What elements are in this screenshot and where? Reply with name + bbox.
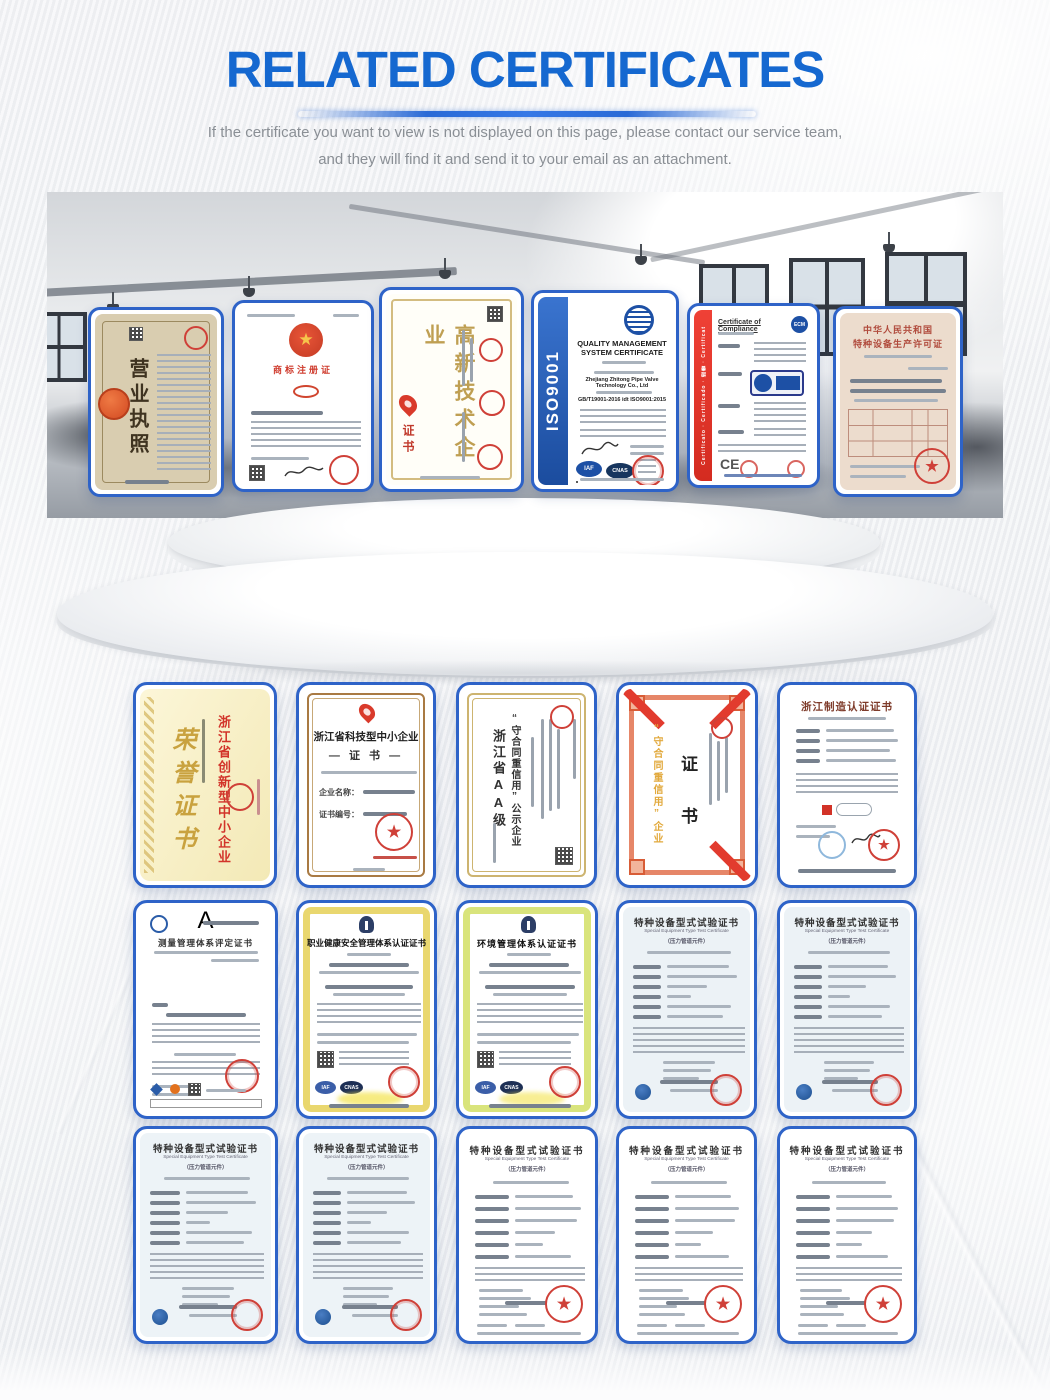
footer-line <box>477 1332 581 1335</box>
certificate-business-license[interactable]: 营业执照 <box>88 307 224 497</box>
certificate-paper: ISO9001 QUALITY MANAGEMENT SYSTEM CERTIF… <box>538 297 672 485</box>
star-glyph: ★ <box>557 1294 571 1314</box>
signature <box>283 463 325 481</box>
issuer-globe-logo <box>315 1309 331 1325</box>
certificate-paper: 荣誉证书 浙江省创新型中小企业 <box>140 689 270 881</box>
field-label-line <box>475 1195 509 1199</box>
date-line <box>630 445 664 448</box>
certificate-honor[interactable]: 荣誉证书 浙江省创新型中小企业 <box>133 682 277 888</box>
issuer-globe-logo <box>635 1084 651 1100</box>
certificate-paper: 测量管理体系评定证书 A <box>140 907 271 1112</box>
certificate-contract-credit[interactable]: “守合同重信用”企业 证 书 <box>616 682 758 888</box>
signature <box>580 439 620 459</box>
certificate-text-line <box>251 411 323 415</box>
date-line <box>836 1324 866 1327</box>
certificate-text-block <box>150 1253 264 1279</box>
certificate-paper: ★ 商标注册证 <box>239 307 367 485</box>
field-label-line <box>150 1211 180 1215</box>
certificate-type-test-5[interactable]: 特种设备型式试验证书 Special Equipment Type Test C… <box>456 1126 598 1344</box>
certificate-title: 特种设备型式试验证书 <box>140 1141 271 1155</box>
certificate-text-line <box>211 959 259 962</box>
qr-code <box>317 1051 334 1068</box>
cert-no-line <box>812 1181 886 1184</box>
red-seal <box>711 717 733 739</box>
field-label-line <box>633 965 661 969</box>
list-line <box>479 1297 531 1300</box>
certificate-paper: 特种设备型式试验证书 Special Equipment Type Test C… <box>784 907 910 1112</box>
field-label-line <box>313 1221 341 1225</box>
certificate-text-line <box>477 1041 571 1044</box>
globe-logo-icon <box>624 305 654 335</box>
field-label-line <box>794 975 822 979</box>
field-value-line <box>828 975 896 978</box>
certificate-text-line <box>343 1295 389 1298</box>
certificate-text-line <box>125 480 169 484</box>
field-value-line <box>828 1015 882 1018</box>
certificate-title-line1: 中华人民共和国 <box>840 323 956 336</box>
iso9001-band: ISO9001 <box>538 297 568 485</box>
certificate-text-line <box>594 371 654 374</box>
certificate-text-block <box>754 342 806 364</box>
qr-code <box>129 327 143 341</box>
red-star-seal: ★ <box>914 448 950 484</box>
list-line <box>800 1305 838 1308</box>
star-glyph: ★ <box>925 457 938 475</box>
issuer-text-line <box>189 1314 237 1317</box>
field-label-line <box>313 1211 341 1215</box>
red-seal <box>226 783 254 811</box>
field-value-line <box>186 1191 248 1194</box>
certificate-text-line <box>343 1287 393 1290</box>
related-certificates-page: RELATED CERTIFICATES If the certificate … <box>0 0 1050 1400</box>
field-label-line <box>475 1219 509 1223</box>
certificate-text-line <box>477 1033 579 1036</box>
certificate-title: 浙江省科技型中小企业 <box>303 729 429 744</box>
orange-seal <box>98 388 130 420</box>
field-label-line <box>633 975 661 979</box>
issuer-text-line <box>179 1305 237 1309</box>
field-value-line <box>515 1255 571 1258</box>
certificate-title: Certificate of Compliance <box>718 319 792 333</box>
certificate-text-line <box>824 1061 874 1064</box>
field-label-line <box>794 1015 822 1019</box>
certificate-title-en: Special Equipment Type Test Certificate <box>463 1157 591 1162</box>
red-seal <box>870 1074 902 1106</box>
issuer-logo <box>150 915 168 933</box>
certificate-text-line <box>182 1287 234 1290</box>
field-label-line <box>475 1243 509 1247</box>
certificate-text-block <box>317 1003 421 1025</box>
ecm-logo: ECM <box>791 316 808 333</box>
iso9001-band-label: ISO9001 <box>543 350 563 431</box>
certificate-aa-contract-credit[interactable]: 浙江省AA级 “守合同重信用”公示企业 <box>456 682 597 888</box>
cnas-logo: CNAS <box>606 463 634 479</box>
field-label-line <box>796 729 820 733</box>
footer-line <box>637 1332 739 1335</box>
date-line <box>798 1324 828 1327</box>
certificate-scope: （压力管道元件） <box>784 1165 910 1173</box>
qr-code <box>576 481 578 483</box>
standard-line: GB/T19001-2016 idt ISO9001:2015 <box>574 397 670 403</box>
red-star-seal: ★ <box>864 1285 902 1323</box>
field-label-line <box>796 1219 830 1223</box>
vertical-text-line <box>493 823 496 863</box>
certificate-scope: （压力管道元件） <box>303 1163 430 1171</box>
certificate-type-test-6[interactable]: 特种设备型式试验证书 Special Equipment Type Test C… <box>616 1126 757 1344</box>
field-label-line <box>633 985 661 989</box>
certificate-text-line <box>479 971 581 974</box>
footer-ornament <box>353 868 385 871</box>
field-value-line <box>186 1241 244 1244</box>
vertical-text-line <box>531 737 534 807</box>
partner-logo-pill <box>836 803 872 816</box>
gold-title: “守合同重信用”企业 <box>649 723 664 845</box>
list-line <box>639 1297 689 1300</box>
field-value-line <box>347 1241 401 1244</box>
issuer-text-line <box>826 1301 866 1305</box>
red-seal <box>549 1066 581 1098</box>
subtitle-line1: If the certificate you want to view is n… <box>0 124 1050 141</box>
vertical-text-line <box>709 733 712 805</box>
red-seal <box>550 705 574 729</box>
certificate-paper: 特种设备型式试验证书 Special Equipment Type Test C… <box>140 1133 271 1337</box>
certificate-text-line <box>854 399 938 402</box>
qr-code <box>249 465 265 481</box>
date-line <box>515 1324 545 1327</box>
field-label-line <box>794 965 822 969</box>
certificate-paper: 特种设备型式试验证书 Special Equipment Type Test C… <box>784 1133 910 1337</box>
red-star-seal: ★ <box>704 1285 742 1323</box>
certificate-title-col1: 浙江省AA级 <box>489 729 508 829</box>
certification-emblem-icon <box>359 916 374 933</box>
field-label-line <box>633 995 661 999</box>
footer-line <box>798 1332 898 1335</box>
certificate-text-block <box>477 1003 583 1025</box>
field-value-line <box>667 985 707 988</box>
certificate-subtitle: 证书 <box>400 424 417 456</box>
field-label-line <box>635 1243 669 1247</box>
field-value-line <box>667 1005 731 1008</box>
certificate-text-line <box>319 971 419 974</box>
field-value-line <box>675 1231 713 1234</box>
list-line <box>639 1313 685 1316</box>
certificate-type-test-7[interactable]: 特种设备型式试验证书 Special Equipment Type Test C… <box>777 1126 917 1344</box>
list-line <box>479 1305 519 1308</box>
certificate-title: 特种设备型式试验证书 <box>784 1143 910 1157</box>
vertical-text-line <box>541 719 544 819</box>
issuer-text-line <box>342 1305 398 1309</box>
certificate-tech-sme[interactable]: 浙江省科技型中小企业 — 证 书 — 企业名称： 证书编号： ★ <box>296 682 436 888</box>
field-label-line <box>150 1201 180 1205</box>
certificate-text-block <box>251 421 361 451</box>
certificate-text-line <box>850 389 946 393</box>
list-line <box>639 1305 677 1308</box>
compliance-band-label: Certificato · Certificado · 證書 · Certifi… <box>700 326 707 465</box>
certificate-text-block <box>718 444 806 454</box>
field-label-line <box>635 1231 669 1235</box>
field-label-line <box>635 1255 669 1259</box>
field-label-line <box>475 1255 509 1259</box>
certificate-paper: 环境管理体系认证证书 IAF CNAS <box>463 907 591 1112</box>
qr-code <box>487 306 503 322</box>
field-label-line <box>796 759 820 763</box>
field-value-line <box>515 1207 581 1210</box>
field-label-line <box>633 1005 661 1009</box>
certificate-text-line <box>663 1069 711 1072</box>
brand-logo <box>293 385 319 398</box>
field-label-line <box>150 1241 180 1245</box>
certificate-title: 环境管理体系认证证书 <box>463 937 591 950</box>
cert-no-line <box>327 1177 409 1180</box>
field-label-line <box>796 739 820 743</box>
certificate-title: 特种设备型式试验证书 <box>463 1143 591 1157</box>
mark-badge-logo <box>754 374 772 392</box>
divider-line <box>321 771 417 774</box>
field-value-line <box>667 1015 723 1018</box>
issuer-text-line <box>505 1301 547 1305</box>
certificate-text-line <box>493 993 567 996</box>
field-label-line <box>718 372 742 376</box>
red-seal <box>477 444 503 470</box>
field-value-line <box>347 1221 371 1224</box>
field-value-line <box>828 1005 890 1008</box>
certificate-text-line <box>850 475 906 478</box>
certificate-environment-management[interactable]: 环境管理体系认证证书 IAF CNAS <box>456 900 598 1119</box>
field-label-line <box>796 1255 830 1259</box>
certificate-text-line <box>908 367 948 370</box>
date-line <box>637 1324 667 1327</box>
certificate-text-line <box>596 391 652 394</box>
certificate-text-block <box>313 1253 423 1279</box>
field-value-line <box>836 1195 892 1198</box>
subtitle-line2: and they will find it and send it to you… <box>0 151 1050 168</box>
issuer-text-line <box>666 1301 706 1305</box>
certificate-zhejiang-made[interactable]: 浙江制造认证证书 ★ <box>777 682 917 888</box>
list-line <box>800 1313 844 1316</box>
red-seal <box>388 1066 420 1098</box>
date-line <box>796 825 836 828</box>
cert-no-line <box>651 1181 727 1184</box>
field1-label: 企业名称： <box>319 787 359 798</box>
certificate-text-block <box>157 354 211 472</box>
field-label-line <box>796 749 820 753</box>
certificate-special-equipment-license[interactable]: 中华人民共和国 特种设备生产许可证 ★ <box>833 306 963 497</box>
certificate-ohs-management[interactable]: 职业健康安全管理体系认证证书 IAF CNAS <box>296 900 437 1119</box>
field-value-line <box>836 1255 888 1258</box>
field-value-line <box>828 985 866 988</box>
footer-line <box>489 1104 571 1108</box>
company-line <box>329 963 409 967</box>
certificate-text-line <box>333 993 405 996</box>
field1-value-line <box>363 790 415 794</box>
certificate-type-test-2[interactable]: 特种设备型式试验证书 Special Equipment Type Test C… <box>777 900 917 1119</box>
certificate-type-test-1[interactable]: 特种设备型式试验证书 Special Equipment Type Test C… <box>616 900 757 1119</box>
field-label-line <box>150 1191 180 1195</box>
cert-no-line <box>164 1177 250 1180</box>
certificate-scope: （压力管道元件） <box>140 1163 271 1171</box>
certificate-text-block <box>475 1267 585 1283</box>
hanging-lamp <box>243 288 255 297</box>
red-seal <box>479 338 503 362</box>
field-label-line <box>633 1015 661 1019</box>
certificate-measurement-system[interactable]: 测量管理体系评定证书 A <box>133 900 278 1119</box>
bottom-fade <box>0 1345 1050 1400</box>
certificate-title: QUALITY MANAGEMENT SYSTEM CERTIFICATE <box>574 339 670 357</box>
field-value-line <box>826 749 890 752</box>
cert-no-line <box>507 953 551 956</box>
field-label-line <box>796 1243 830 1247</box>
certificate-of-compliance[interactable]: Certificato · Certificado · 證書 · Certifi… <box>687 303 820 488</box>
certificate-title-col2: “守合同重信用”公示企业 <box>507 713 522 847</box>
certificate-paper: 浙江省AA级 “守合同重信用”公示企业 <box>463 689 590 881</box>
certificate-title-en: Special Equipment Type Test Certificate <box>303 1155 430 1160</box>
footer-line <box>798 869 896 873</box>
certificate-trademark-registration[interactable]: ★ 商标注册证 <box>232 300 374 492</box>
certificate-paper: 特种设备型式试验证书 Special Equipment Type Test C… <box>623 907 750 1112</box>
field-value-line <box>347 1191 407 1194</box>
compliance-band: Certificato · Certificado · 證書 · Certifi… <box>694 310 712 481</box>
star-glyph: ★ <box>387 822 401 842</box>
vertical-text-line <box>557 729 560 809</box>
star-glyph: ★ <box>878 837 890 853</box>
podium-tier2-top <box>57 552 993 676</box>
iaf-logo: IAF <box>475 1081 496 1094</box>
certificate-text-line <box>602 361 646 364</box>
certificate-text-block <box>152 1023 260 1047</box>
list-line <box>479 1313 527 1316</box>
vertical-text-line <box>549 719 552 811</box>
field-value-line <box>836 1243 862 1246</box>
footer-line <box>580 478 664 481</box>
field-label-line <box>313 1191 341 1195</box>
field-label-line <box>794 995 822 999</box>
vertical-text-line <box>462 330 465 386</box>
certificate-text-line <box>864 355 932 358</box>
certificate-scope: （压力管道元件） <box>623 1165 750 1173</box>
vertical-text-line <box>257 779 260 815</box>
certificate-text-line <box>206 1089 246 1092</box>
field-label-line <box>718 344 740 348</box>
field-label-line <box>796 1231 830 1235</box>
certificate-title: 高新技术企业 <box>418 324 478 485</box>
standard-line <box>485 985 575 989</box>
vertical-text-line <box>717 741 720 801</box>
field-value-line <box>186 1231 252 1234</box>
certificate-type-test-4[interactable]: 特种设备型式试验证书 Special Equipment Type Test C… <box>296 1126 437 1344</box>
certificate-paper: 特种设备型式试验证书 Special Equipment Type Test C… <box>623 1133 750 1337</box>
field-label-line <box>150 1221 180 1225</box>
iaf-logo: IAF <box>576 461 602 477</box>
issuer-globe-logo <box>796 1084 812 1100</box>
cert-no-line <box>347 953 391 956</box>
certificate-type-test-3[interactable]: 特种设备型式试验证书 Special Equipment Type Test C… <box>133 1126 278 1344</box>
certificate-subtitle: — 证 书 — <box>303 747 429 763</box>
field-label-line <box>152 1003 168 1007</box>
field-label-line <box>635 1219 669 1223</box>
star-glyph: ★ <box>876 1294 890 1314</box>
field-value-line <box>675 1255 729 1258</box>
certificate-title-line2: 特种设备生产许可证 <box>840 337 956 350</box>
footer-box <box>150 1099 262 1108</box>
red-seal <box>184 326 208 350</box>
frame-corner <box>629 859 645 875</box>
qr-code <box>477 1051 494 1068</box>
certificate-text-line <box>718 332 754 335</box>
field-value-line <box>828 995 850 998</box>
certificate-paper: 中华人民共和国 特种设备生产许可证 ★ <box>840 313 956 490</box>
certificate-paper: 浙江制造认证证书 ★ <box>784 689 910 881</box>
blue-watermark-seal <box>818 831 846 859</box>
certificate-text-block <box>580 409 666 425</box>
certificate-paper: 特种设备型式试验证书 Special Equipment Type Test C… <box>303 1133 430 1337</box>
issuer-text-line <box>660 1080 718 1084</box>
vertical-text-line <box>573 719 576 779</box>
certificate-title: 测量管理体系评定证书 <box>140 937 271 949</box>
field-label-line <box>313 1231 341 1235</box>
certificate-text-line <box>251 457 309 460</box>
footer-line <box>724 474 802 477</box>
certificate-title: 特种设备型式试验证书 <box>623 1143 750 1157</box>
certificate-text-line <box>824 1069 870 1072</box>
certificate-text-line <box>420 476 480 479</box>
field-value-line <box>186 1211 228 1214</box>
certificate-text-block <box>633 1027 745 1053</box>
field-value-line <box>836 1219 894 1222</box>
certificate-text-block <box>754 428 806 438</box>
certificate-scope: （压力管道元件） <box>784 937 910 945</box>
field-label-line <box>718 430 744 434</box>
title-underline <box>298 111 756 117</box>
factory-window <box>47 312 87 382</box>
red-seal <box>225 1059 259 1093</box>
field-label-line <box>796 1195 830 1199</box>
certificate-text-block <box>754 402 806 422</box>
certificate-paper: 特种设备型式试验证书 Special Equipment Type Test C… <box>463 1133 591 1337</box>
standard-line <box>325 985 413 989</box>
company-line <box>489 963 569 967</box>
certificate-title: 特种设备型式试验证书 <box>623 915 750 929</box>
certificate-scope: （压力管道元件） <box>623 937 750 945</box>
field-value-line <box>828 965 888 968</box>
field-value-line <box>675 1195 731 1198</box>
list-line <box>479 1289 523 1292</box>
certificate-text-line <box>247 314 295 317</box>
issuer-text-line <box>822 1080 878 1084</box>
field-label-line <box>150 1231 180 1235</box>
certificate-text-line <box>663 1061 715 1064</box>
certificate-text-block <box>635 1267 743 1283</box>
list-line <box>639 1289 683 1292</box>
certificate-iso9001[interactable]: ISO9001 QUALITY MANAGEMENT SYSTEM CERTIF… <box>531 290 679 492</box>
certificate-text-line <box>808 717 886 720</box>
field-label-line <box>475 1231 509 1235</box>
cert-no-line <box>808 951 890 954</box>
field-value-line <box>826 759 896 762</box>
field-value-line <box>186 1201 256 1204</box>
certificate-high-tech-enterprise[interactable]: 高新技术企业 证书 <box>379 287 524 492</box>
cert-no-line <box>647 951 731 954</box>
certificate-paper: “守合同重信用”企业 证 书 <box>623 689 751 881</box>
gold-edge-decoration <box>144 697 154 873</box>
certificate-scope: （压力管道元件） <box>463 1165 591 1173</box>
divider-line <box>154 951 258 954</box>
footer-line <box>329 1104 409 1108</box>
field-value-line <box>515 1219 577 1222</box>
field-value-line <box>836 1207 898 1210</box>
vertical-text-line <box>462 412 465 462</box>
certificate-title: 特种设备型式试验证书 <box>303 1141 430 1155</box>
accreditation-logo-orange <box>170 1084 180 1094</box>
